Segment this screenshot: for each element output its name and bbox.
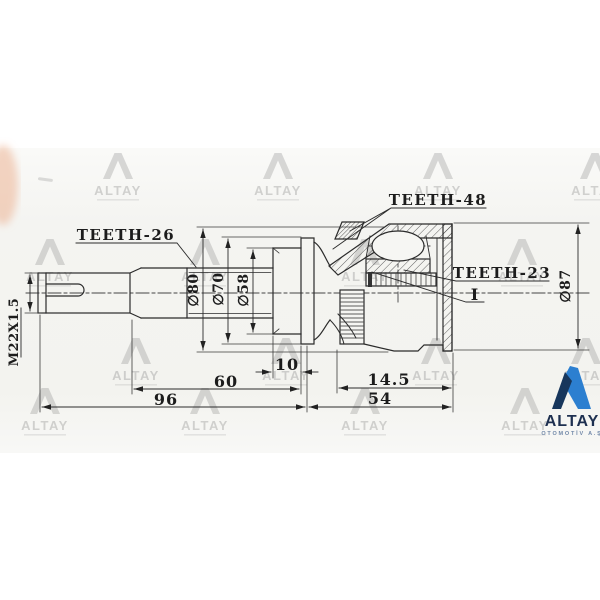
watermark-text: ALTAY — [112, 368, 160, 383]
dim-10-label: 10 — [275, 355, 299, 374]
dia-80-label: ∅80 — [186, 273, 202, 306]
dia-58-label: ∅58 — [236, 273, 252, 306]
scanned-part-drawing-page: ALTAY ALTAY ALTAY ALTAY ALTAY ALTAY ALTA… — [0, 0, 600, 600]
watermark-text: ALTAY — [26, 269, 74, 284]
teeth-23-label: TEETH-23 — [453, 264, 551, 282]
dia-70-label: ∅70 — [211, 272, 227, 305]
cv-joint-technical-drawing: ALTAY ALTAY ALTAY ALTAY ALTAY ALTAY ALTA… — [0, 0, 600, 600]
dim-14-5-label: 14.5 — [368, 370, 411, 389]
teeth-26-label: TEETH-26 — [77, 226, 175, 244]
dim-54-label: 54 — [368, 389, 392, 408]
ball-bearing — [372, 231, 424, 261]
dia-87-label: ∅87 — [558, 269, 574, 302]
dim-60-label: 60 — [214, 372, 238, 391]
thread-size-label: M22X1.5 — [7, 298, 22, 367]
dim-96-label: 96 — [154, 390, 178, 409]
housing-back-wall — [443, 224, 452, 351]
watermark-text: ALTAY — [571, 183, 600, 198]
watermark-text: ALTAY — [181, 418, 229, 433]
logo-subtitle: OTOMOTİV A.Ş — [541, 430, 600, 437]
logo-title: ALTAY — [545, 413, 599, 430]
snap-ring-label: I — [471, 285, 479, 304]
watermark-text: ALTAY — [341, 418, 389, 433]
watermark-text: ALTAY — [94, 183, 142, 198]
snap-ring-groove — [368, 272, 372, 287]
teeth-48-label: TEETH-48 — [389, 191, 487, 209]
watermark-text: ALTAY — [254, 183, 302, 198]
watermark-text: ALTAY — [21, 418, 69, 433]
